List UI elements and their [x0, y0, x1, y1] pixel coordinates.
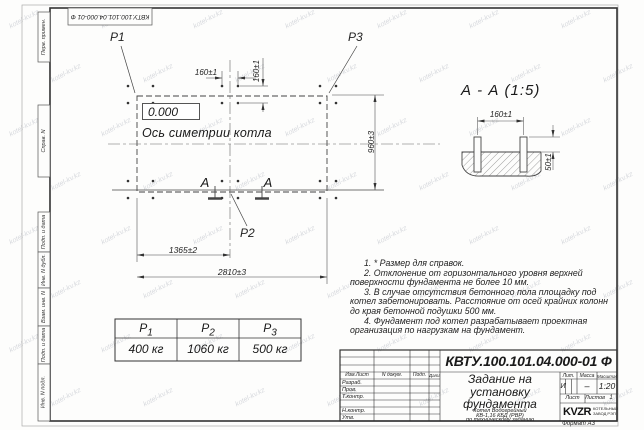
mass-value: –	[577, 379, 597, 394]
p1-sub: 1	[147, 327, 153, 338]
p3-sub: 3	[271, 327, 277, 338]
note-3: 3. В случае отсутствия бетонного пола пл…	[350, 288, 614, 317]
dim-protrusion: 50±1	[544, 148, 554, 176]
point-label-p2: P2	[240, 226, 255, 240]
load-value-p2: 1060 кг	[177, 338, 239, 361]
drawing-sheet: kotel-kv.kzkotel-kv.kzkotel-kv.kzkotel-k…	[0, 0, 644, 430]
point-label-p3: P3	[348, 30, 363, 44]
kvzr-logo-caption: КОТЕЛЬНЫЙ ЗАВОД РЭП	[593, 407, 618, 416]
doc-title-line-1: Задание на	[440, 373, 560, 386]
elevation-mark: 0.000	[142, 103, 200, 120]
title-block-designation: КВТУ.100.101.04.000-01 Ф	[441, 350, 616, 372]
load-table-header-p3: P3	[239, 319, 301, 338]
top-stamp-designation: КВТУ.100.101.04.000-01 Ф	[68, 8, 152, 25]
scale-value: 1:20	[597, 379, 617, 394]
note-4: 4. Фундамент под котел разрабатывает про…	[350, 317, 614, 336]
point-label-p1: P1	[110, 30, 125, 44]
sheets-value: 1	[605, 394, 617, 403]
role-prov: Пров.	[341, 387, 374, 394]
dim-pitch-x: 160±1	[190, 68, 222, 77]
section-title: А - А (1:5)	[461, 82, 540, 99]
dim-pitch-y: 160±1	[252, 58, 262, 84]
boiler-axis-label: Ось симетрии котла	[142, 126, 272, 140]
section-cut-letter-right: А	[261, 175, 275, 190]
load-value-p1: 400 кг	[115, 338, 177, 361]
frame-label-sprav-n: Справ. N	[38, 105, 50, 177]
logo-caption-line-2: ЗАВОД РЭП	[593, 412, 618, 417]
dim-bolt-pitch: 160±1	[484, 110, 518, 119]
note-2: 2. Отклонение от горизонтального уровня …	[350, 269, 614, 288]
role-utv: Утв.	[341, 415, 374, 422]
section-cut-letter-left: А	[198, 175, 212, 190]
col-header-podp: Подп.	[410, 372, 429, 379]
kvzr-logo: KVZR КОТЕЛЬНЫЙ ЗАВОД РЭП	[561, 404, 616, 420]
anchor-bolt-dots	[127, 85, 338, 200]
col-header-izm-list: Изм.Лист	[340, 372, 374, 379]
frame-label-perv-primen: Перв. примен.	[38, 12, 50, 62]
technical-notes: 1. * Размер для справок. 2. Отклонение о…	[350, 259, 614, 336]
frame-label-inv-podl: Инв. N подл.	[38, 364, 50, 421]
load-value-p3: 500 кг	[239, 338, 301, 361]
dim-depth: 960±3	[367, 124, 377, 160]
role-razrab: Разраб.	[341, 380, 374, 387]
lit-value: И	[560, 379, 566, 394]
p2-sub: 2	[209, 327, 215, 338]
role-nkontr: Н.контр.	[341, 408, 374, 415]
kvzr-logo-text: KVZR	[563, 406, 591, 418]
dim-width-total: 2810±3	[201, 267, 263, 277]
frame-label-podp-data-1: Подп. и дата	[38, 212, 50, 252]
load-table-header-p1: P1	[115, 319, 177, 338]
load-table-header-p2: P2	[177, 319, 239, 338]
col-header-data: Дата	[429, 372, 440, 379]
frame-label-podp-data-2: Подп. и дата	[38, 326, 50, 364]
frame-label-inv-dubl: Инв. N дубл.	[38, 252, 50, 288]
frame-label-vzam-inv: Взам. инв. N	[38, 288, 50, 326]
dim-width-mid: 1365±2	[152, 245, 214, 255]
col-header-n-dokum: N докум.	[374, 372, 410, 379]
format-label: Формат А3	[540, 421, 617, 427]
sheets-label: Листов	[585, 394, 605, 403]
sheet-label: Лист	[560, 394, 585, 403]
role-tkontr: Т.контр.	[341, 394, 374, 401]
